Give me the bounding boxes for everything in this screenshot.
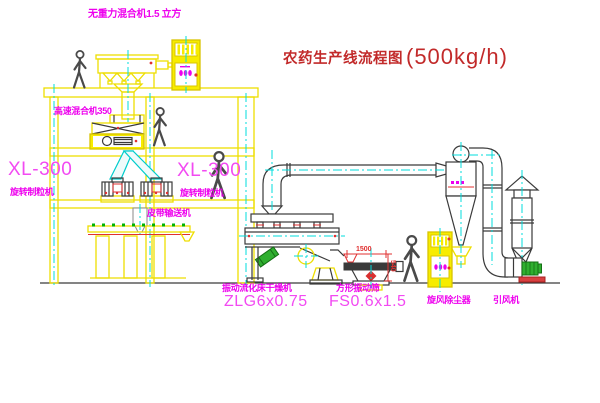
label-gravity-mixer: 无重力混合机1.5 立方: [88, 10, 181, 20]
label-cyclone: 旋风除尘器: [427, 296, 471, 305]
label-screen-name: 方形振动筛: [336, 284, 380, 293]
granulator-left-machine: [101, 178, 134, 202]
worker-figure-second-floor: [154, 108, 166, 145]
label-dryer-model: ZLG6x0.75: [224, 294, 308, 310]
label-granulator-left-name: 旋转制粒机: [10, 188, 54, 197]
diagram-title-capacity: (500kg/h): [406, 44, 508, 70]
label-dryer-name: 振动流化床干燥机: [222, 284, 292, 293]
label-high-speed-mixer: 高速混合机350: [54, 107, 112, 116]
diagram-title: 农药生产线流程图 (500kg/h): [283, 44, 508, 70]
label-granulator-right-model: XL-300: [177, 161, 241, 180]
drop-chute: [133, 204, 147, 236]
worker-figure-top-floor: [74, 51, 86, 88]
diagram-title-text: 农药生产线流程图: [283, 47, 403, 68]
label-belt-conveyor: 皮带输送机: [147, 209, 191, 218]
worker-figure-ground: [404, 236, 418, 281]
exhaust-duct: [263, 150, 450, 212]
label-fan: 引风机: [493, 296, 519, 305]
dryer-machine: [239, 206, 345, 284]
flow-diagram-canvas: 农药生产线流程图 (500kg/h) 无重力混合机1.5 立方 高速混合机350…: [0, 0, 600, 403]
granulator-right-machine: [140, 178, 173, 202]
label-screen-model: FS0.6x1.5: [329, 294, 406, 310]
bucket-elevator-top: [172, 36, 200, 93]
fan-machine: [505, 258, 545, 282]
belt-conveyor-machine: [88, 224, 194, 279]
bucket-elevator-bottom: [428, 228, 452, 292]
label-granulator-left-model: XL-300: [8, 160, 72, 179]
label-granulator-right-name: 旋转制粒机: [180, 189, 224, 198]
dimension-screen-height: 540: [389, 260, 396, 272]
dimension-screen-width: 1500: [356, 246, 372, 253]
high-speed-mixer-machine: [90, 115, 144, 149]
